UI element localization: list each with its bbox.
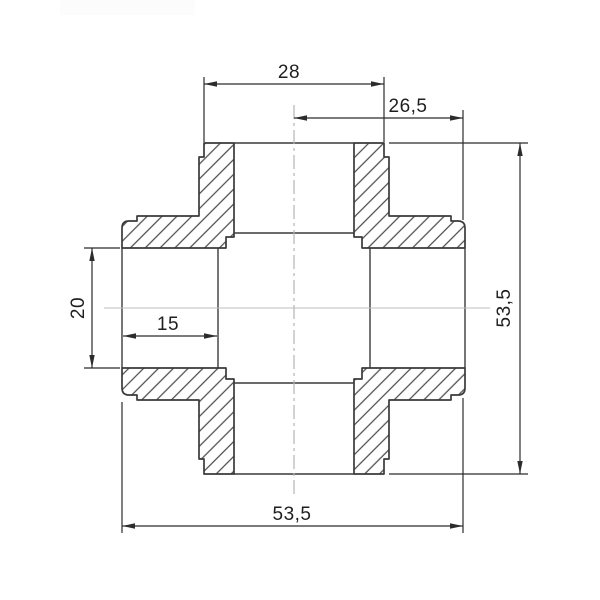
dim-label-overall-width: 53,5 [273, 504, 312, 525]
dim-label-port-bore: 20 [68, 297, 89, 319]
drawing-canvas: 28 26,5 53,5 20 15 5 [0, 0, 600, 600]
dim-label-socket-depth: 15 [157, 314, 179, 335]
dim-label-center-to-right: 26,5 [389, 96, 428, 117]
dim-label-top-port-width: 28 [278, 62, 300, 83]
dim-label-overall-height: 53,5 [494, 289, 515, 328]
scan-artifact [60, 0, 195, 15]
cross-fitting-technical-drawing: 28 26,5 53,5 20 15 5 [0, 0, 600, 600]
